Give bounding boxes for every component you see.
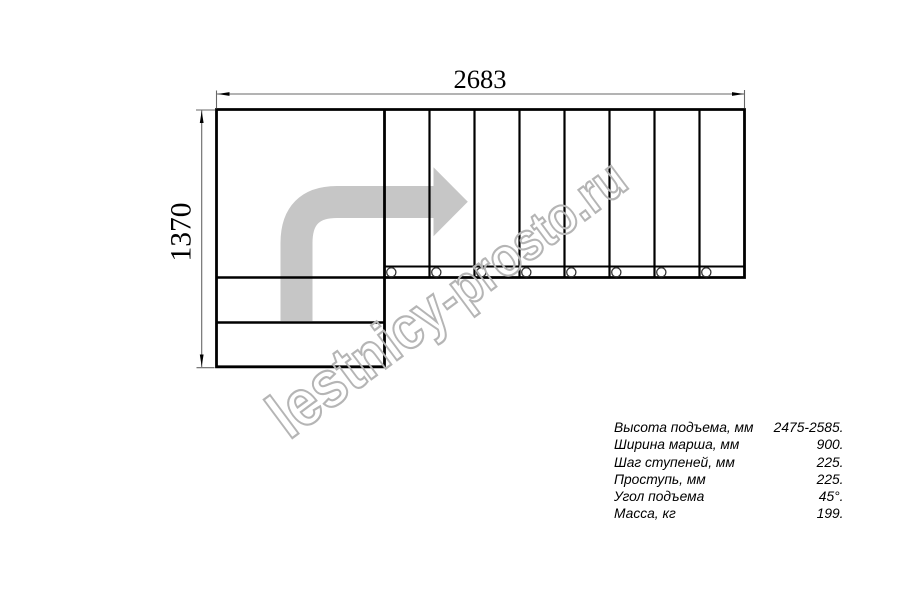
svg-text:1370: 1370 [166, 203, 198, 262]
svg-text:2683: 2683 [454, 64, 507, 94]
